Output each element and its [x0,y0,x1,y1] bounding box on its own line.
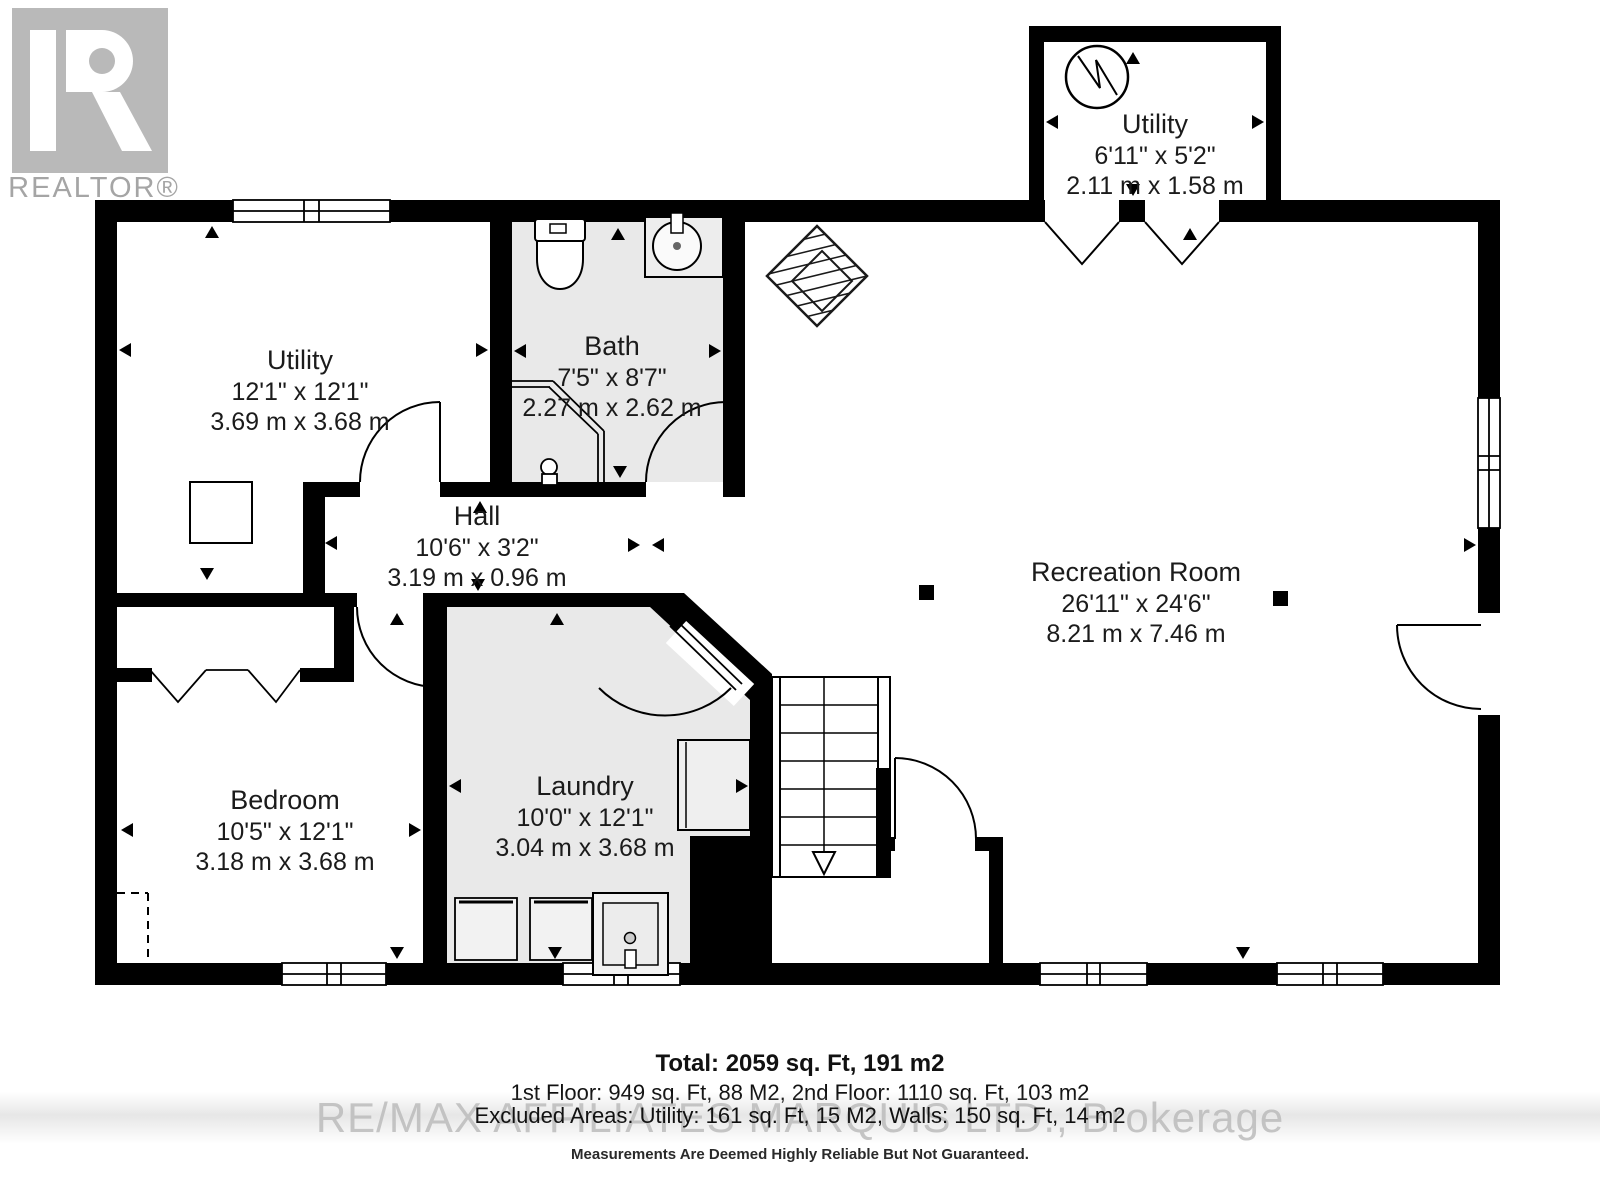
window [1478,398,1500,528]
excluded-areas-text: Excluded Areas: Utility: 161 sq. Ft, 15 … [0,1103,1600,1129]
room-label-hall: Hall 10'6" x 3'2" 3.19 m x 0.96 m [387,500,566,593]
room-label-bath: Bath 7'5" x 8'7" 2.27 m x 2.62 m [522,330,701,423]
room-dim-imperial: 7'5" x 8'7" [522,363,701,393]
room-name: Recreation Room [1031,556,1241,589]
room-label-laundry: Laundry 10'0" x 12'1" 3.04 m x 3.68 m [495,770,674,863]
room-label-bedroom: Bedroom 10'5" x 12'1" 3.18 m x 3.68 m [195,784,374,877]
room-dim-imperial: 10'5" x 12'1" [195,817,374,847]
room-dim-imperial: 12'1" x 12'1" [210,377,389,407]
closet-dashed-outline [117,893,148,961]
window [233,200,390,222]
room-name: Utility [1066,108,1243,141]
room-dim-metric: 2.27 m x 2.62 m [522,393,701,423]
room-dim-metric: 3.04 m x 3.68 m [495,833,674,863]
door-swing [895,758,976,839]
utility-equipment-box [190,482,252,543]
disclaimer-text: Measurements Are Deemed Highly Reliable … [0,1146,1600,1163]
window [282,963,386,985]
room-name: Bedroom [195,784,374,817]
room-name: Utility [210,344,389,377]
room-dim-metric: 8.21 m x 7.46 m [1031,619,1241,649]
room-dim-metric: 2.11 m x 1.58 m [1066,171,1243,201]
room-label-utility-top: Utility 6'11" x 5'2" 2.11 m x 1.58 m [1066,108,1243,201]
room-dim-imperial: 6'11" x 5'2" [1066,141,1243,171]
closet-bifold-doors [150,670,300,702]
room-dim-imperial: 26'11" x 24'6" [1031,589,1241,619]
room-dim-metric: 3.19 m x 0.96 m [387,563,566,593]
room-dim-metric: 3.69 m x 3.68 m [210,407,389,437]
room-dim-imperial: 10'6" x 3'2" [387,533,566,563]
room-name: Laundry [495,770,674,803]
water-heater-icon [1066,46,1128,108]
stairs [772,677,890,877]
room-label-utility-left: Utility 12'1" x 12'1" 3.69 m x 3.68 m [210,344,389,437]
laundry-sink-icon [593,893,668,975]
floor-plan-graphic [0,0,1600,1200]
floorplan-page: REALTOR® [0,0,1600,1200]
room-name: Bath [522,330,701,363]
room-dim-metric: 3.18 m x 3.68 m [195,847,374,877]
room-label-recreation: Recreation Room 26'11" x 24'6" 8.21 m x … [1031,556,1241,649]
dryer-icon [530,898,592,960]
door-swing [1397,613,1500,715]
room-name: Hall [387,500,566,533]
bathroom-sink-icon [645,213,723,277]
toilet-icon [535,219,585,289]
room-dim-imperial: 10'0" x 12'1" [495,803,674,833]
window [1277,963,1383,985]
washer-icon [455,898,517,960]
fireplace-icon [760,222,875,328]
window [1040,963,1147,985]
total-area-text: Total: 2059 sq. Ft, 191 m2 [0,1050,1600,1078]
